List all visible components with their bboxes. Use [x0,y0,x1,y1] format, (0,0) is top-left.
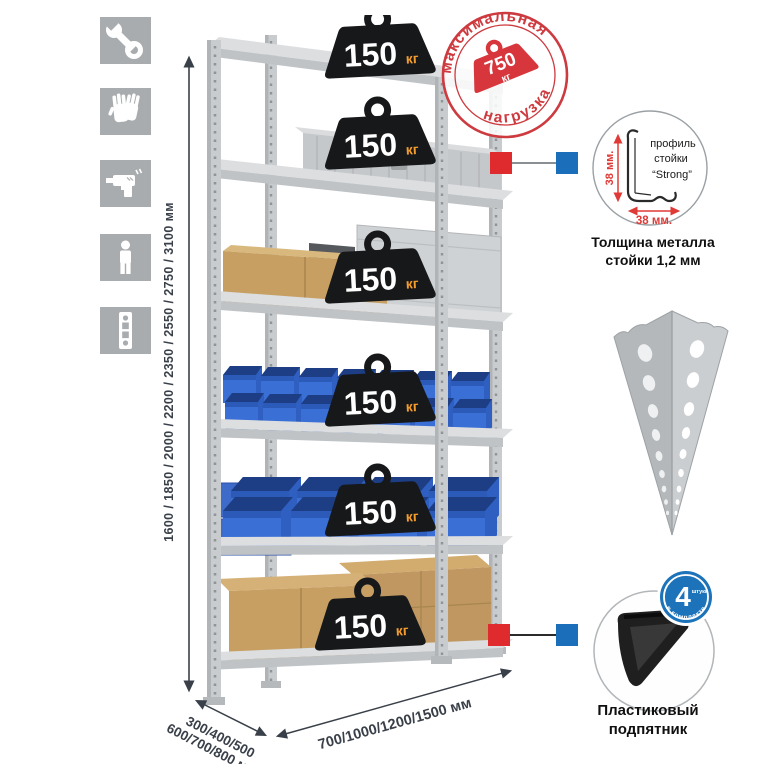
svg-text:кг: кг [405,398,419,415]
gloves-icon [100,88,151,135]
callout-line-profile [510,162,558,164]
infographic-canvas: 1600 / 1850 / 2000 / 2200 / 2350 / 2550 … [0,0,765,765]
svg-text:кг: кг [405,275,419,292]
svg-text:кг: кг [395,622,409,639]
shelf-load-badge-4: 150 кг [322,354,436,427]
wrench-icon [100,17,151,64]
svg-text:150: 150 [343,126,398,165]
footprint-dimensions: 300/400/500 600/700/800 мм 700/1000/1200… [130,658,562,764]
assembly-wrench-tile [100,17,151,64]
svg-text:кг: кг [405,508,419,525]
profile-height-dim: 38 мм. [604,151,616,186]
svg-text:4: 4 [675,581,691,612]
angle-post-image [598,293,746,541]
post-profile-detail: 38 мм. 38 мм. профиль стойки “Strong” [585,105,715,235]
plastic-foot-caption: Пластиковый подпятник [572,701,724,739]
svg-text:стойки: стойки [654,153,688,165]
callout-marker-red-bottom [488,624,510,646]
max-load-stamp: максимальная нагрузка 750 кг [435,5,575,145]
callout-marker-blue-bottom [556,624,578,646]
profile-width-dim: 38 мм. [636,215,672,227]
callout-line-foot [508,634,558,636]
callout-marker-red-top [490,152,512,174]
svg-text:профиль: профиль [650,138,696,150]
svg-text:150: 150 [343,260,398,299]
shelf-load-badge-1: 150 кг [322,15,436,79]
height-options-label: 1600 / 1850 / 2000 / 2200 / 2350 / 2550 … [162,52,180,692]
included-count-badge: 4 штуки в комплекте [655,566,717,628]
shelf-load-badge-2: 150 кг [322,97,436,170]
upright-post-icon [100,307,151,354]
svg-text:150: 150 [333,607,388,646]
callout-marker-blue-top [556,152,578,174]
upright-post-tile [100,307,151,354]
svg-text:150: 150 [343,35,398,74]
metal-thickness-note: Толщина металла стойки 1,2 мм [578,233,728,269]
rack-post-front-left [203,40,225,705]
svg-text:150: 150 [343,493,398,532]
svg-text:“Strong”: “Strong” [652,169,692,181]
drill-tile [100,160,151,207]
person-icon [100,234,151,281]
svg-text:150: 150 [343,383,398,422]
svg-text:кг: кг [405,50,419,67]
person-tile [100,234,151,281]
gloves-tile [100,88,151,135]
depth-options-label: 300/400/500 600/700/800 мм [164,707,266,764]
svg-text:штуки: штуки [692,589,709,595]
drill-icon [100,160,151,207]
shelf-load-badge-5: 150 кг [322,464,436,537]
shelf-5 [207,536,513,555]
svg-text:кг: кг [405,141,419,158]
